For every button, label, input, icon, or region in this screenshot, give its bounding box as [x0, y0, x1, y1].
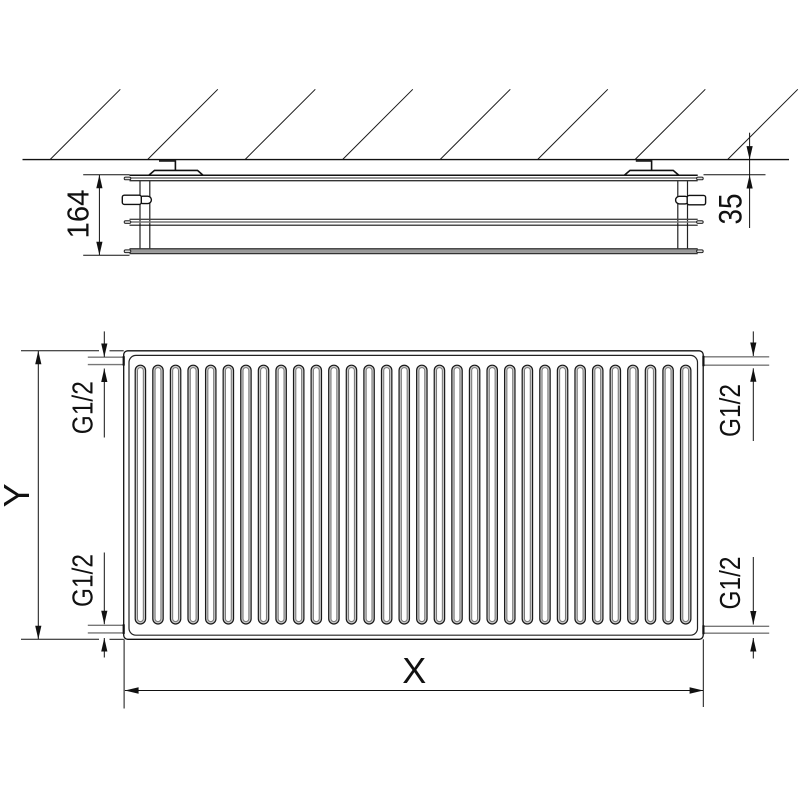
svg-text:G1/2: G1/2	[68, 381, 100, 434]
svg-text:G1/2: G1/2	[68, 554, 100, 607]
svg-text:35: 35	[713, 194, 749, 225]
svg-text:X: X	[402, 650, 426, 691]
svg-text:164: 164	[60, 190, 95, 239]
svg-text:G1/2: G1/2	[715, 557, 747, 610]
svg-text:Y: Y	[0, 483, 37, 507]
svg-text:G1/2: G1/2	[715, 384, 747, 437]
